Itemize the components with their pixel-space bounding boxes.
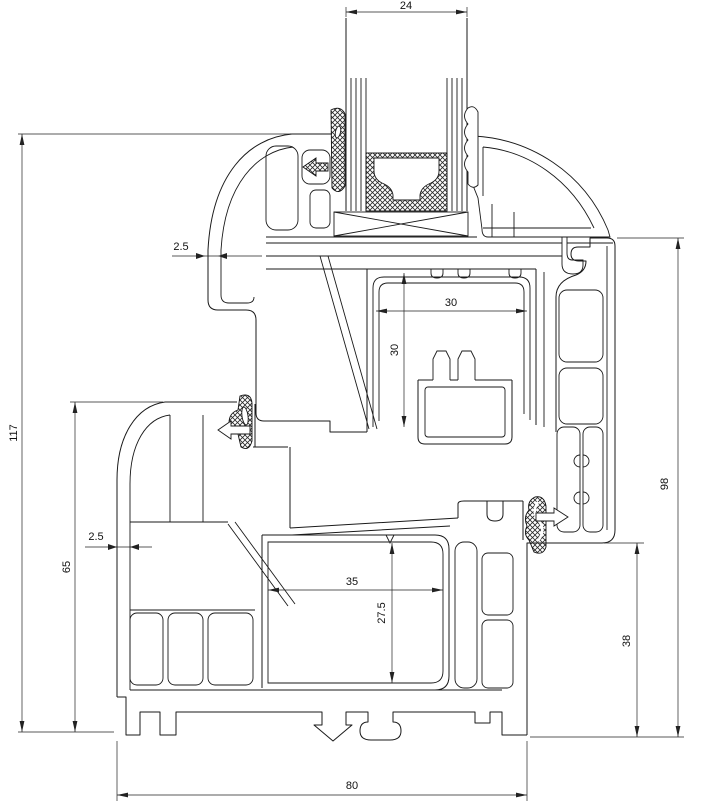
glazing-bead bbox=[465, 107, 611, 237]
dim-label-98: 98 bbox=[659, 478, 671, 490]
gasket-arrow-left bbox=[303, 158, 328, 176]
insulated-glass-unit bbox=[334, 18, 468, 236]
frame-right-section bbox=[527, 238, 615, 735]
outer-seal-gasket bbox=[525, 497, 568, 554]
hardware-groove bbox=[418, 351, 512, 444]
dim-30-height: 30 bbox=[389, 273, 404, 427]
dim-80: 80 bbox=[117, 741, 527, 801]
frame-chamber-5 bbox=[482, 553, 513, 615]
dim-label-35: 35 bbox=[346, 576, 358, 588]
dim-30-width: 30 bbox=[376, 297, 527, 311]
main-chamber-inner bbox=[268, 542, 443, 683]
frame-right-chamber-1 bbox=[559, 290, 603, 362]
dim-2-5-lower: 2.5 bbox=[85, 531, 152, 550]
frame-upper-webs bbox=[130, 415, 228, 522]
frame-chamber-4 bbox=[455, 542, 477, 688]
glass-pane-right bbox=[447, 78, 462, 211]
sash-chamber-small bbox=[310, 190, 330, 228]
dim-38: 38 bbox=[604, 543, 644, 737]
dim-24: 24 bbox=[346, 0, 467, 17]
frame-chamber-1 bbox=[130, 613, 163, 685]
frame-bottom-contour bbox=[117, 697, 527, 741]
dim-label-65: 65 bbox=[61, 561, 73, 573]
frame-right-chamber-2 bbox=[559, 368, 603, 424]
center-seal-gasket bbox=[218, 395, 252, 449]
gasket-seat-step bbox=[253, 404, 290, 528]
frame-chamber-2 bbox=[168, 613, 203, 685]
glazing-support-block bbox=[334, 212, 468, 236]
dim-label-117: 117 bbox=[8, 424, 20, 442]
dim-label-38: 38 bbox=[621, 635, 633, 647]
frame-right-chamber-4 bbox=[583, 427, 603, 532]
interlock-notches bbox=[574, 455, 589, 504]
dim-65: 65 bbox=[61, 402, 163, 732]
dim-label-80: 80 bbox=[346, 780, 358, 792]
frame-inner-left bbox=[130, 415, 170, 690]
frame-chamber-3 bbox=[208, 613, 253, 685]
dim-27-5: 27.5 bbox=[376, 543, 392, 683]
rebate-slope bbox=[290, 518, 458, 535]
dim-label-2-5-upper: 2.5 bbox=[173, 241, 188, 253]
dim-label-30-width: 30 bbox=[445, 297, 457, 309]
window-profile-cross-section-drawing: 24 2.5 117 65 2.5 30 bbox=[0, 0, 706, 804]
dim-label-27-5: 27.5 bbox=[376, 602, 388, 623]
dim-label-2-5-lower: 2.5 bbox=[88, 531, 103, 543]
rebate-upstand bbox=[458, 501, 523, 540]
main-chamber-outer bbox=[262, 535, 449, 690]
frame-chamber-6 bbox=[482, 620, 513, 688]
dim-label-30-height: 30 bbox=[389, 344, 401, 356]
dim-35: 35 bbox=[268, 576, 443, 590]
dim-label-24: 24 bbox=[400, 0, 412, 12]
dim-2-5-upper: 2.5 bbox=[172, 241, 262, 259]
frame-outer-left bbox=[117, 402, 165, 697]
cad-canvas: 24 2.5 117 65 2.5 30 bbox=[0, 0, 706, 804]
sash-chamber-left bbox=[266, 146, 298, 230]
glass-pane-left bbox=[351, 78, 366, 211]
glazing-rebate-shelf bbox=[266, 237, 613, 269]
sash-diagonal-web bbox=[320, 256, 377, 429]
frame-profile bbox=[117, 238, 615, 741]
